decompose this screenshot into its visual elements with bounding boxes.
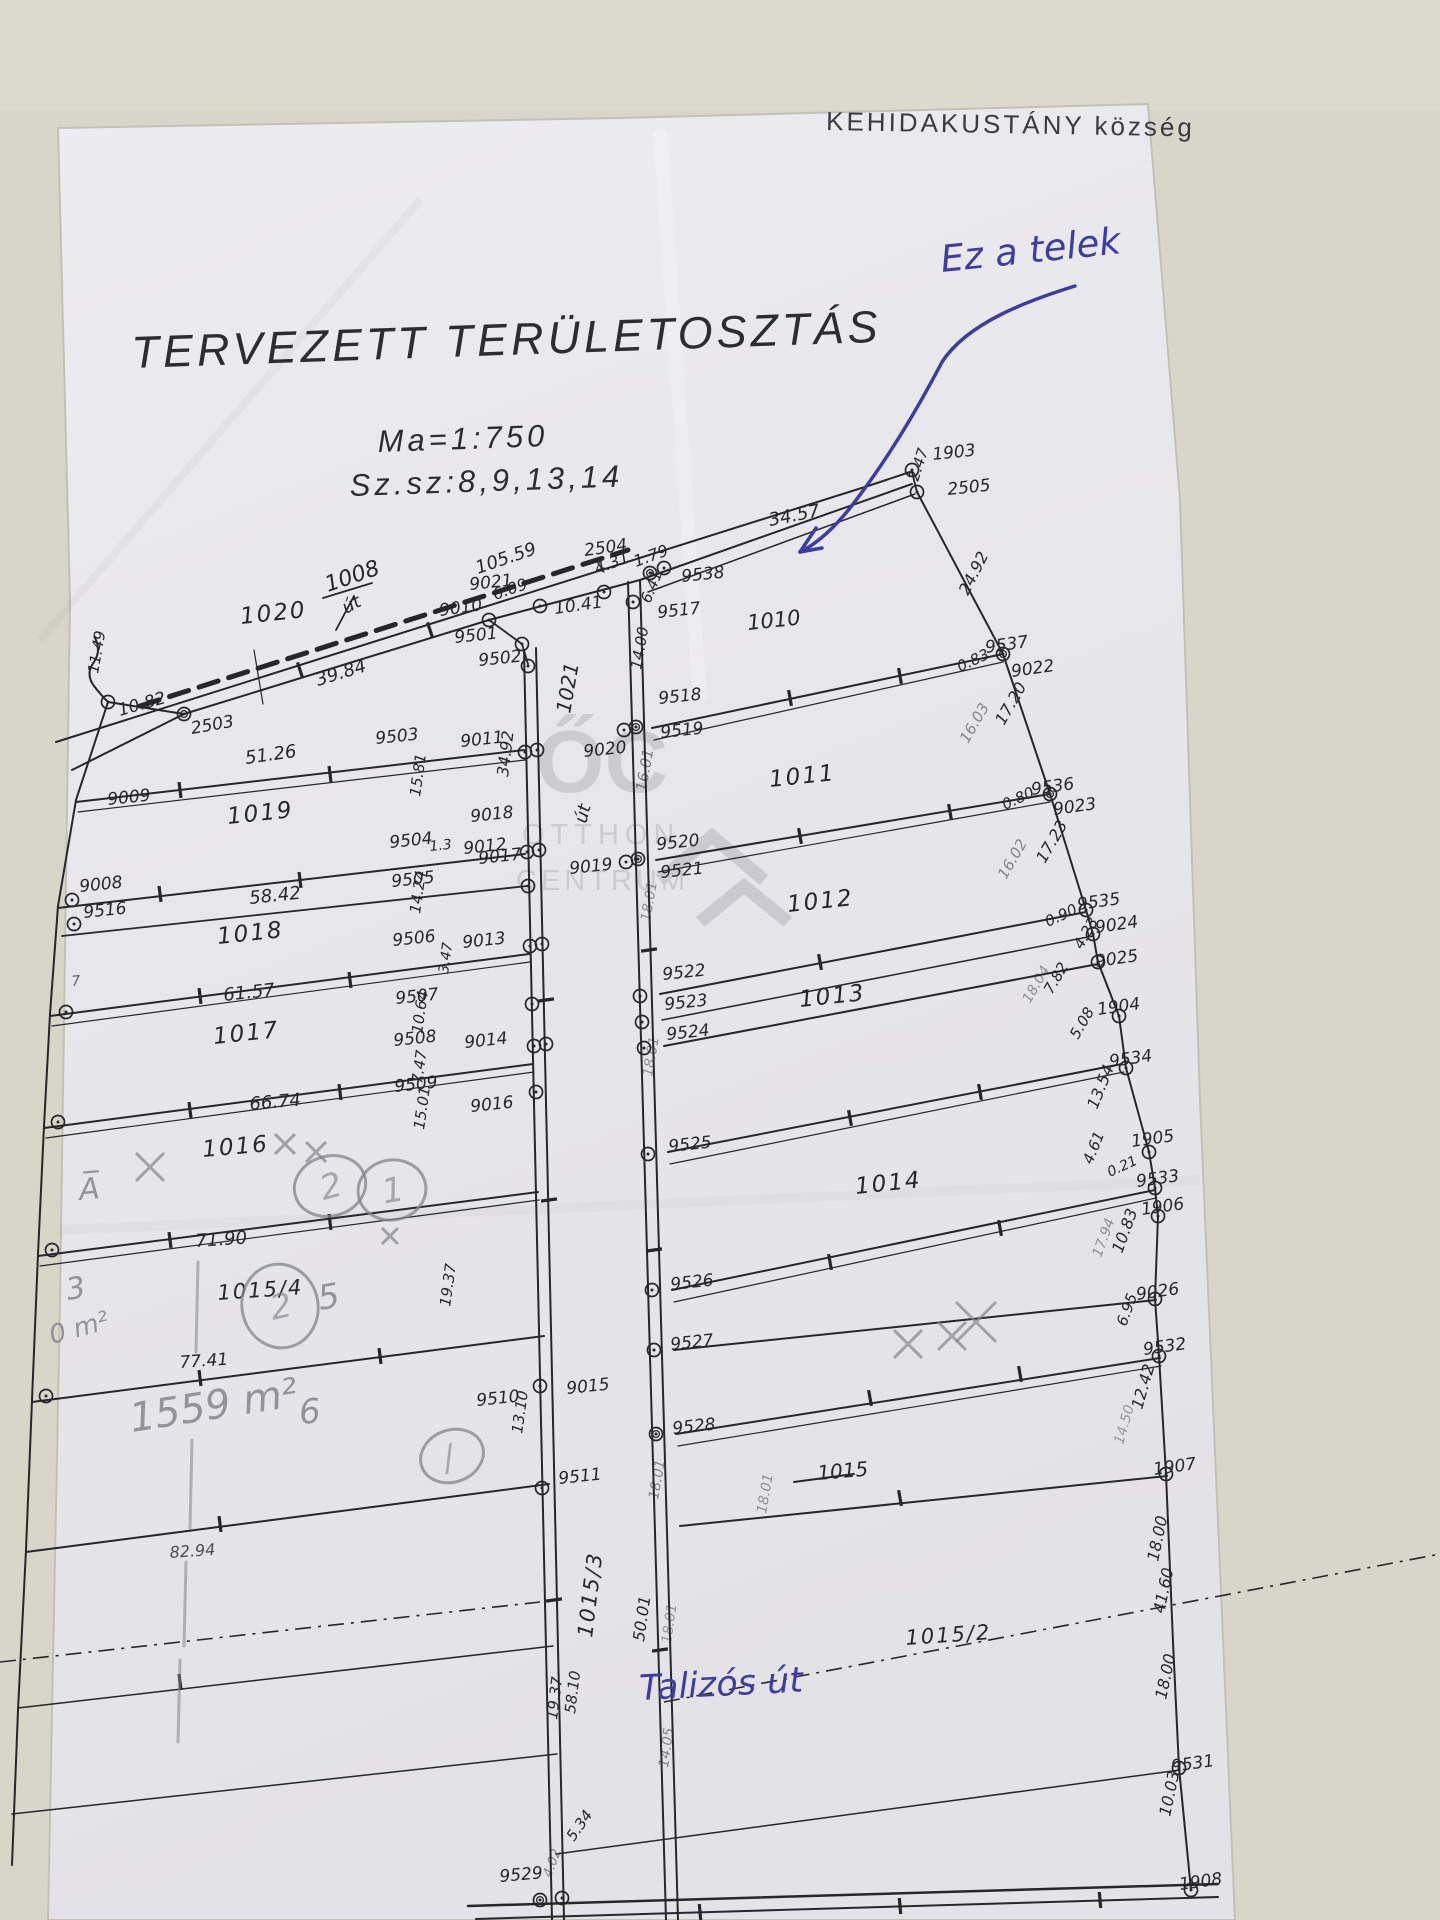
boundary-tick (379, 1348, 381, 1364)
boundary-tick (538, 999, 554, 1001)
survey-point-dot (51, 1249, 54, 1252)
pencil-stroke (196, 1262, 198, 1352)
survey-point-dot (45, 1395, 48, 1398)
boundary-tick (179, 782, 181, 798)
survey-point-dot (527, 665, 530, 668)
map-label: 71.90 (195, 1227, 248, 1252)
survey-point-dot (183, 713, 186, 716)
boundary-tick (646, 1249, 662, 1251)
survey-point-dot (1148, 1151, 1151, 1154)
map-label: 66.74 (249, 1090, 302, 1115)
survey-point-dot (663, 567, 666, 570)
map-label: 9529 (499, 1863, 544, 1887)
boundary-tick (1099, 1892, 1100, 1908)
survey-point-dot (539, 1899, 542, 1902)
map-label: 7 (71, 973, 82, 990)
survey-point-dot (545, 1043, 548, 1046)
pencil-stroke (184, 1562, 186, 1646)
pencil-stroke (190, 1440, 192, 1528)
survey-point-dot (524, 751, 527, 754)
survey-point-dot (541, 1487, 544, 1490)
survey-point-dot (539, 1385, 542, 1388)
survey-point-dot (65, 1011, 68, 1014)
survey-point-dot (536, 749, 539, 752)
boundary-tick (541, 1199, 557, 1201)
boundary-tick (899, 1898, 900, 1914)
boundary-tick (339, 1084, 341, 1100)
survey-point-dot (488, 619, 491, 622)
scanned-plan-photo: KEHIDAKUSTÁNY község TERVEZETT TERÜLETOS… (0, 0, 1440, 1920)
survey-point-dot (71, 899, 74, 902)
plan-scale: Ma=1:750 (377, 418, 549, 459)
survey-point-dot (539, 605, 542, 608)
survey-point-dot (521, 643, 524, 646)
pencil-note: 6 (297, 1391, 322, 1433)
survey-point-dot (623, 729, 626, 732)
survey-point-dot (538, 849, 541, 852)
boundary-tick (219, 1516, 221, 1532)
survey-point-dot (625, 861, 628, 864)
survey-point-dot (647, 1153, 650, 1156)
survey-point-dot (637, 858, 640, 861)
survey-point-dot (632, 601, 635, 604)
boundary-tick (546, 1599, 562, 1601)
survey-point-dot (73, 923, 76, 926)
boundary-tick (699, 1904, 700, 1920)
boundary-tick (199, 1370, 201, 1386)
survey-point-dot (535, 1091, 538, 1094)
boundary-tick (349, 972, 351, 988)
map-label: 1.3 (429, 837, 453, 855)
map-label: 1015 (816, 1457, 869, 1485)
survey-point-dot (639, 995, 642, 998)
survey-point-dot (529, 945, 532, 948)
survey-point-dot (655, 1433, 658, 1436)
paper-sheet (48, 104, 1235, 1920)
boundary-tick (189, 1102, 191, 1118)
survey-point-dot (561, 1897, 564, 1900)
survey-point-dot (653, 1349, 656, 1352)
survey-point-dot (526, 851, 529, 854)
survey-point-dot (527, 885, 530, 888)
boundary-tick (652, 1649, 668, 1651)
boundary-tick (199, 988, 201, 1004)
survey-point-dot (651, 1289, 654, 1292)
map-label: 82.94 (169, 1540, 216, 1562)
survey-point-dot (531, 1003, 534, 1006)
survey-point-dot (603, 591, 606, 594)
survey-point-dot (533, 1045, 536, 1048)
map-label: 77.41 (179, 1350, 229, 1373)
survey-point-dot (635, 726, 638, 729)
pencil-stroke (178, 1660, 180, 1742)
survey-point-dot (107, 701, 110, 704)
boundary-tick (329, 766, 331, 782)
boundary-tick (641, 949, 657, 951)
survey-point-dot (541, 943, 544, 946)
boundary-tick (159, 886, 161, 902)
survey-point-dot (916, 491, 919, 494)
survey-point-dot (57, 1121, 60, 1124)
boundary-tick (169, 1232, 171, 1248)
survey-point-dot (641, 1021, 644, 1024)
map-svg: KEHIDAKUSTÁNY község TERVEZETT TERÜLETOS… (0, 0, 1440, 1920)
